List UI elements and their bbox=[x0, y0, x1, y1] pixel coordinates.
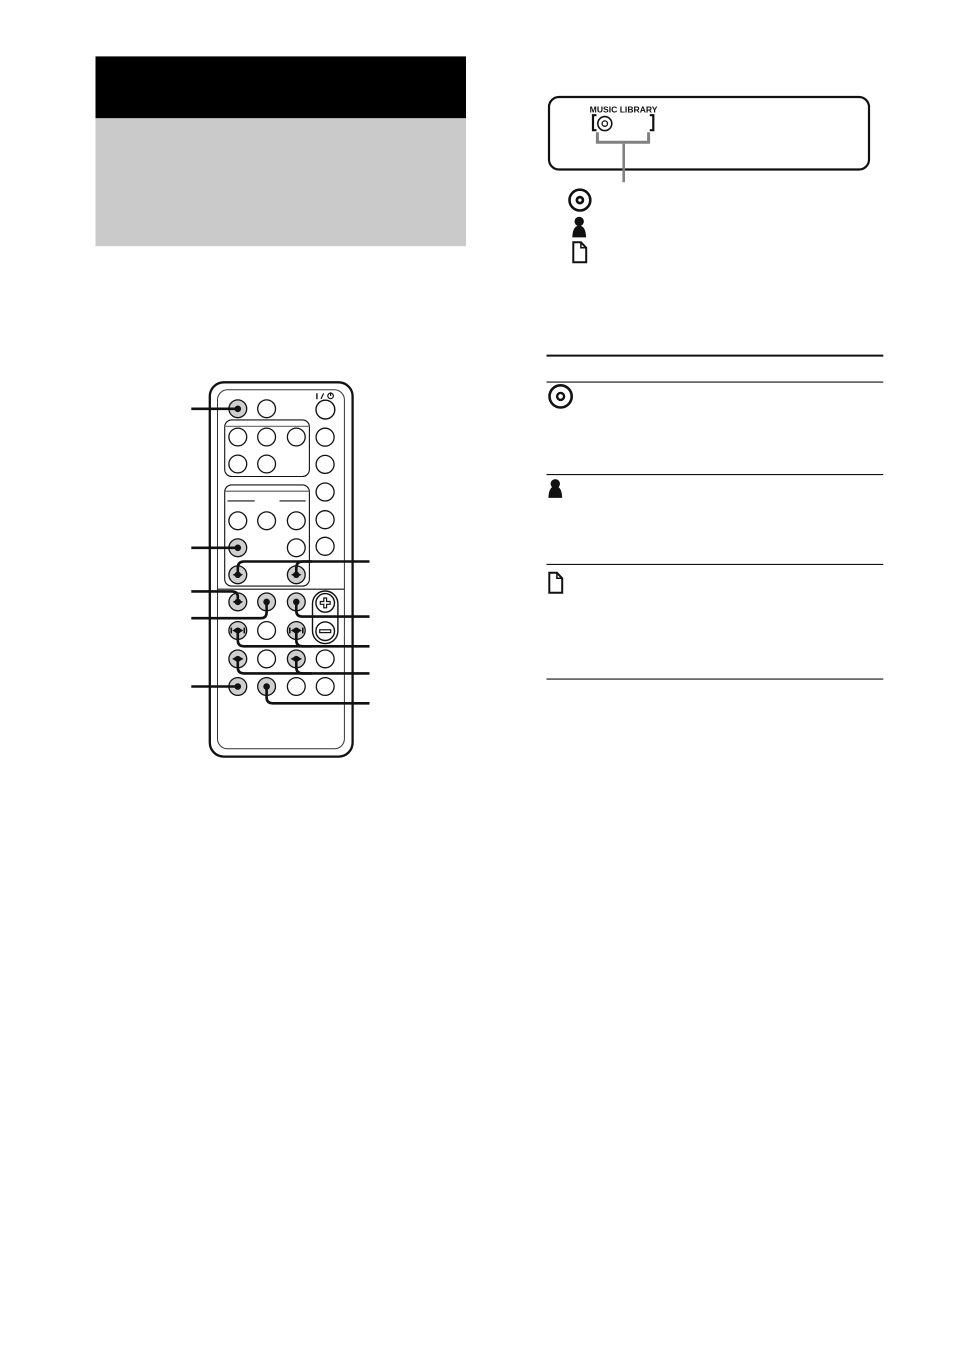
svg-text:MUSIC LIBRARY: MUSIC LIBRARY bbox=[590, 104, 658, 114]
